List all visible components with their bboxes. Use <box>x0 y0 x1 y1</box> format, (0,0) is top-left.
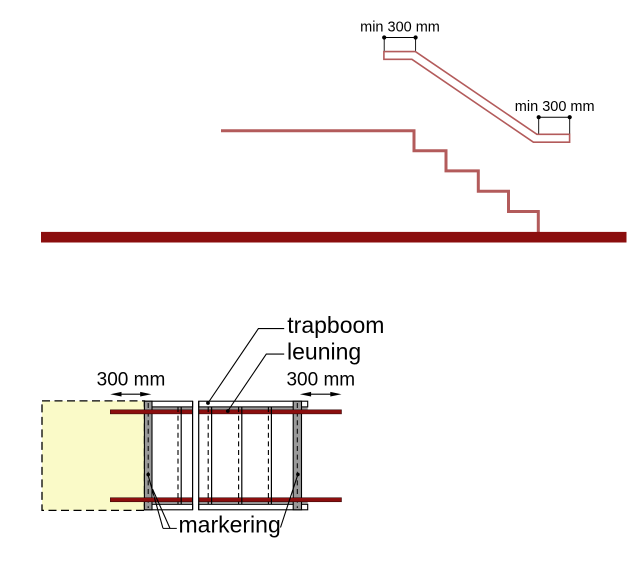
svg-text:min 300 mm: min 300 mm <box>360 20 440 36</box>
svg-text:markering: markering <box>179 512 281 538</box>
svg-text:300 mm: 300 mm <box>286 370 355 391</box>
svg-text:min 300 mm: min 300 mm <box>515 99 595 115</box>
svg-text:leuning: leuning <box>287 339 361 365</box>
svg-text:trapboom: trapboom <box>287 312 384 338</box>
svg-text:300 mm: 300 mm <box>97 370 166 391</box>
